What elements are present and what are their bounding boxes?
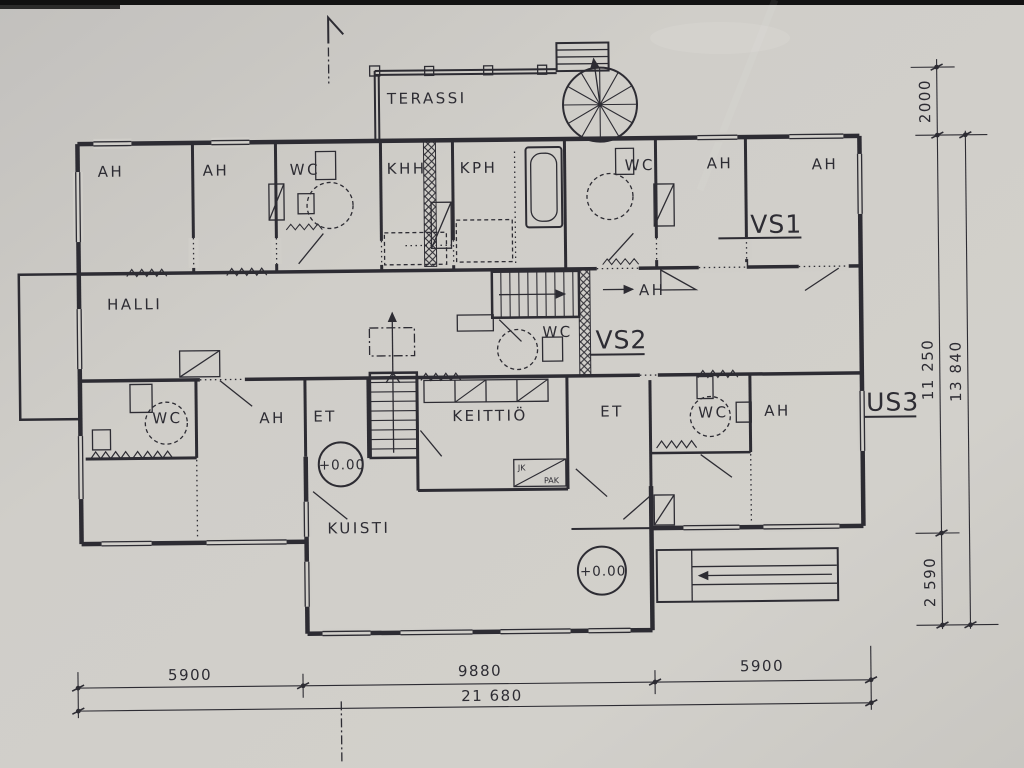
floor-plan-drawing: TERASSI (0, 0, 1024, 768)
floor-plan-photo: TERASSI (0, 0, 1024, 768)
